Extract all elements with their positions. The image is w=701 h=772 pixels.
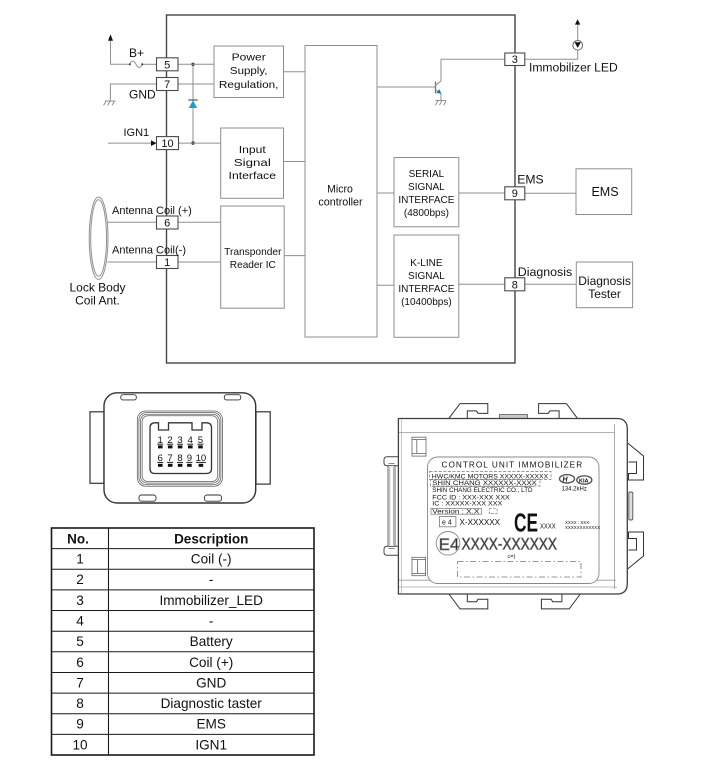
svg-text:K-LINE: K-LINE — [410, 258, 443, 269]
svg-text:Reader IC: Reader IC — [230, 259, 276, 271]
svg-text:6: 6 — [76, 655, 84, 670]
svg-text:6: 6 — [164, 218, 170, 230]
svg-text:Immobilizer LED: Immobilizer LED — [529, 61, 618, 75]
svg-text:E4: E4 — [439, 535, 460, 554]
svg-text:Transponder: Transponder — [224, 246, 282, 258]
svg-text:Input: Input — [239, 144, 266, 156]
svg-text:IGN1: IGN1 — [124, 127, 150, 139]
svg-text:IC : XXXXX-XXX XXX: IC : XXXXX-XXX XXX — [432, 500, 503, 507]
svg-text:Interface: Interface — [229, 170, 277, 182]
svg-text:8: 8 — [76, 696, 84, 711]
svg-text:B+: B+ — [129, 46, 144, 60]
svg-text:SERIAL: SERIAL — [409, 169, 445, 180]
svg-text:7: 7 — [164, 79, 170, 91]
svg-text:1: 1 — [76, 552, 84, 567]
svg-text:XXXX-XXXXXX: XXXX-XXXXXX — [462, 535, 558, 554]
svg-text:XXXX: XXXX — [540, 524, 556, 531]
svg-text:Diagnosis: Diagnosis — [518, 265, 572, 279]
svg-text:No.: No. — [67, 531, 89, 546]
svg-text:GND: GND — [129, 88, 156, 102]
svg-text:INTERFACE: INTERFACE — [398, 195, 454, 206]
svg-text:(4800bps): (4800bps) — [404, 208, 449, 219]
svg-text:-: - — [209, 572, 214, 587]
svg-text:Coil Ant.: Coil Ant. — [75, 294, 120, 308]
svg-text:e 4: e 4 — [442, 519, 452, 526]
svg-text:EMS: EMS — [196, 717, 225, 732]
svg-text:Immobilizer_LED: Immobilizer_LED — [159, 593, 263, 608]
svg-text:CONTROL UNIT IMMOBILIZER: CONTROL UNIT IMMOBILIZER — [442, 460, 584, 469]
svg-text:SHIN CHANG ELECTRIC CO., LTD: SHIN CHANG ELECTRIC CO., LTD — [432, 487, 533, 494]
svg-text:Antenna Coil(-): Antenna Coil(-) — [112, 245, 186, 257]
svg-text:8: 8 — [512, 279, 518, 291]
svg-text:Supply,: Supply, — [230, 65, 268, 77]
svg-text:Diagnosis: Diagnosis — [578, 274, 631, 288]
svg-text:Signal: Signal — [234, 157, 271, 169]
svg-text:9: 9 — [76, 717, 84, 732]
svg-text:SIGNAL: SIGNAL — [408, 182, 445, 193]
svg-text:Power: Power — [232, 52, 267, 64]
svg-text:9: 9 — [512, 188, 518, 200]
svg-text:4: 4 — [76, 614, 84, 629]
svg-text:Regulation,: Regulation, — [219, 79, 279, 91]
svg-text:5: 5 — [76, 634, 84, 649]
svg-text:CE: CE — [514, 508, 538, 538]
svg-text:SIGNAL: SIGNAL — [408, 271, 445, 282]
svg-text:EMS: EMS — [591, 185, 618, 199]
svg-text:5: 5 — [164, 59, 170, 71]
svg-text:X-XXXXXX: X-XXXXXX — [460, 518, 501, 527]
svg-text:Battery: Battery — [190, 634, 233, 649]
svg-text:GND: GND — [196, 675, 226, 690]
svg-text:2: 2 — [76, 572, 84, 587]
svg-text:Diagnostic taster: Diagnostic taster — [161, 696, 263, 711]
svg-text:10: 10 — [161, 138, 173, 150]
svg-text:3: 3 — [512, 54, 518, 66]
svg-text:IGN1: IGN1 — [195, 737, 227, 752]
svg-text:3: 3 — [76, 593, 84, 608]
svg-text:SHIN CHANG XXXXXX-XXXX: SHIN CHANG XXXXXX-XXXX — [432, 480, 537, 487]
svg-text:Coil (+): Coil (+) — [189, 655, 233, 670]
svg-text:134.2kHz: 134.2kHz — [562, 486, 587, 492]
svg-text:Coil (-): Coil (-) — [191, 552, 232, 567]
svg-text:7: 7 — [76, 675, 84, 690]
svg-text:EMS: EMS — [517, 173, 543, 187]
svg-text:Tester: Tester — [588, 287, 621, 301]
svg-text:KIA: KIA — [579, 479, 589, 485]
svg-text:Lock Body: Lock Body — [69, 281, 125, 295]
svg-text:Micro: Micro — [327, 184, 353, 196]
svg-text:XXXXXXXXXXXX: XXXXXXXXXXXX — [565, 525, 600, 530]
svg-text:1: 1 — [164, 257, 170, 269]
svg-text:controller: controller — [318, 196, 363, 208]
svg-text:(10400bps): (10400bps) — [401, 297, 452, 308]
svg-text:Antenna Coil (+): Antenna Coil (+) — [112, 205, 192, 217]
svg-text:c=): c=) — [508, 554, 516, 560]
svg-text:Version : X.X: Version : X.X — [432, 508, 480, 515]
svg-text:10: 10 — [72, 737, 88, 752]
svg-text:INTERFACE: INTERFACE — [398, 284, 454, 295]
svg-text:-: - — [209, 614, 214, 629]
svg-text:Description: Description — [174, 531, 248, 546]
